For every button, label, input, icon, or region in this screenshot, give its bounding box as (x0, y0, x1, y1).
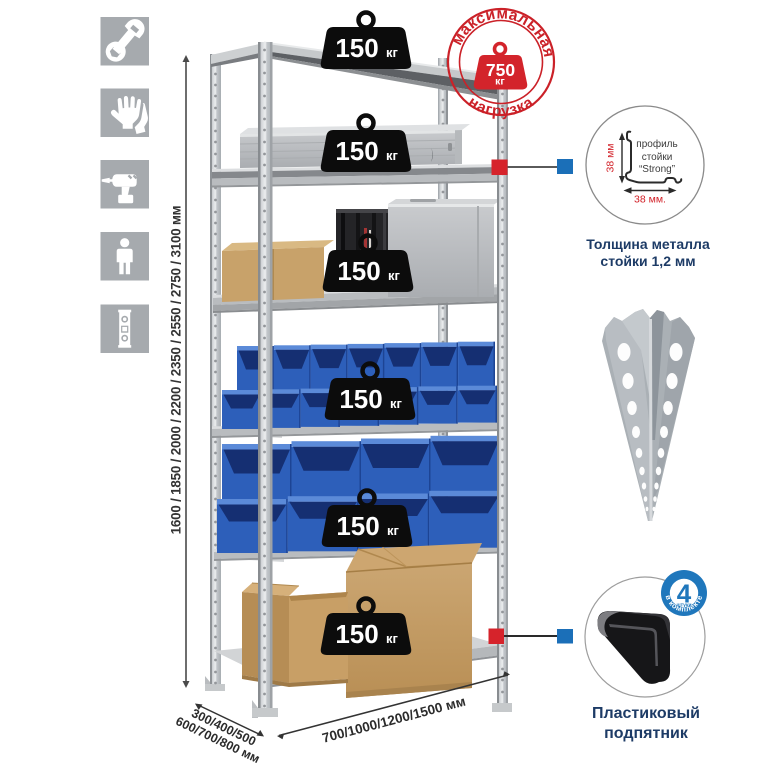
svg-text:1600 / 1850 / 2000 / 2200 / 23: 1600 / 1850 / 2000 / 2200 / 2350 / 2550 … (169, 206, 184, 535)
svg-text:Толщина металла: Толщина металла (586, 236, 710, 252)
svg-text:38 мм: 38 мм (605, 143, 617, 172)
svg-text:38 мм.: 38 мм. (634, 194, 666, 206)
svg-text:кг: кг (495, 76, 505, 88)
svg-text:профиль: профиль (636, 138, 677, 150)
svg-text:стойки 1,2 мм: стойки 1,2 мм (600, 253, 695, 269)
svg-text:подпятник: подпятник (604, 725, 689, 742)
svg-text:Пластиковый: Пластиковый (592, 705, 700, 722)
svg-text:стойки: стойки (642, 152, 673, 163)
svg-text:“Strong”: “Strong” (639, 164, 675, 175)
